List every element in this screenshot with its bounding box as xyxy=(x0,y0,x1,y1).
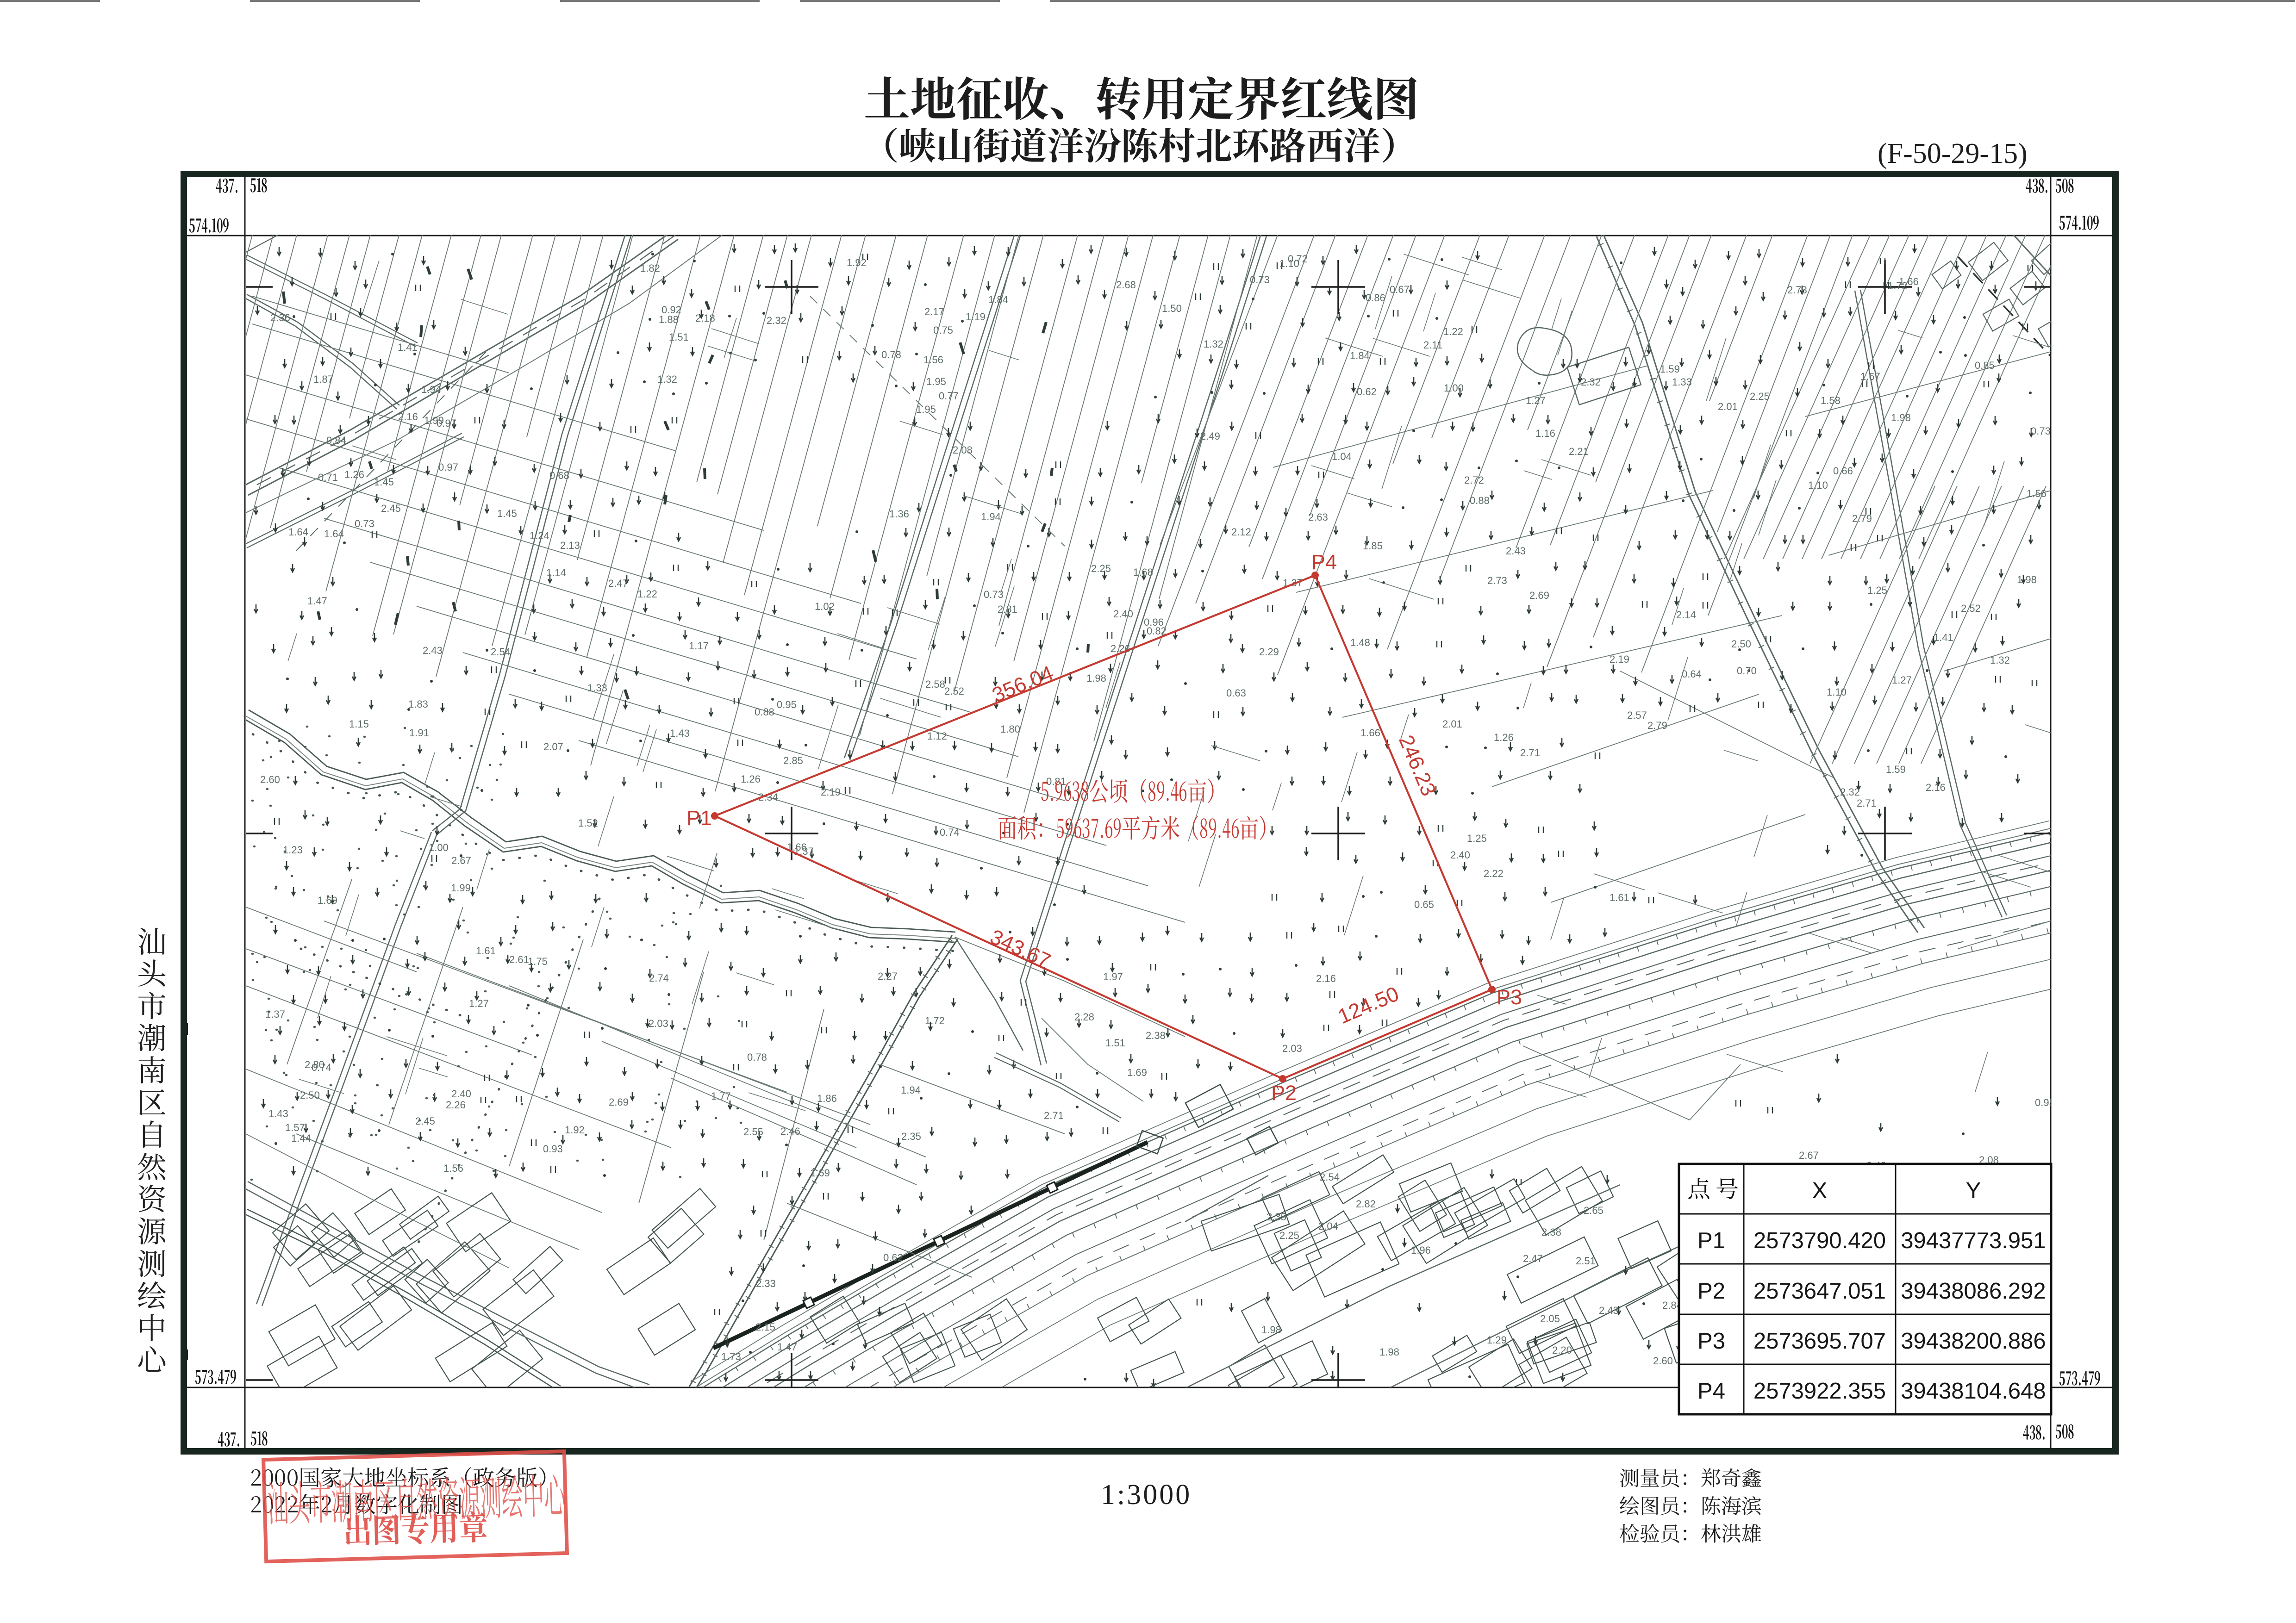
svg-text:2.16: 2.16 xyxy=(1316,973,1336,984)
svg-text:1.19: 1.19 xyxy=(966,311,986,323)
svg-text:39438086.292: 39438086.292 xyxy=(1901,1279,2046,1304)
svg-text:1.26: 1.26 xyxy=(344,469,364,480)
svg-text:2.05: 2.05 xyxy=(1540,1313,1560,1325)
svg-text:2.58: 2.58 xyxy=(925,678,945,690)
svg-text:1.47: 1.47 xyxy=(307,595,327,607)
svg-text:1.83: 1.83 xyxy=(408,698,428,710)
svg-text:2.71: 2.71 xyxy=(1520,747,1540,759)
svg-text:2.36: 2.36 xyxy=(270,312,290,323)
svg-text:1.64: 1.64 xyxy=(324,528,344,540)
svg-text:(F-50-29-15): (F-50-29-15) xyxy=(1878,138,2028,169)
svg-text:1.92: 1.92 xyxy=(847,257,867,268)
svg-text:2.45: 2.45 xyxy=(415,1115,435,1127)
svg-text:1.02: 1.02 xyxy=(815,601,835,612)
svg-text:1.36: 1.36 xyxy=(889,508,909,520)
svg-text:2.16: 2.16 xyxy=(1926,782,1946,793)
svg-text:0.77: 0.77 xyxy=(939,390,959,402)
svg-text:2.67: 2.67 xyxy=(1799,1150,1819,1161)
svg-text:2.69: 2.69 xyxy=(609,1096,629,1108)
svg-text:1.10: 1.10 xyxy=(1827,686,1847,698)
svg-text:1.57: 1.57 xyxy=(285,1122,305,1133)
svg-text:1.77: 1.77 xyxy=(711,1090,731,1102)
svg-text:0.86: 0.86 xyxy=(1366,292,1385,304)
svg-text:0.66: 0.66 xyxy=(1833,465,1853,477)
svg-text:1.00: 1.00 xyxy=(429,842,449,853)
svg-text:2.32: 2.32 xyxy=(1581,376,1601,388)
svg-text:1.69: 1.69 xyxy=(1127,1067,1147,1078)
svg-text:1.41: 1.41 xyxy=(398,342,418,353)
svg-text:1.59: 1.59 xyxy=(1886,764,1906,775)
svg-text:P1: P1 xyxy=(686,806,712,830)
svg-text:2.01: 2.01 xyxy=(1442,718,1462,730)
svg-text:1.80: 1.80 xyxy=(1000,723,1020,735)
svg-text:2.25: 2.25 xyxy=(1750,391,1770,402)
svg-text:2.35: 2.35 xyxy=(901,1131,921,1142)
svg-text:1.87: 1.87 xyxy=(313,373,333,385)
svg-text:0.97: 0.97 xyxy=(438,461,458,473)
svg-text:2.52: 2.52 xyxy=(1961,603,1981,614)
svg-text:2.43: 2.43 xyxy=(423,645,443,656)
svg-text:1.22: 1.22 xyxy=(1443,326,1463,337)
svg-text:0.85: 0.85 xyxy=(1975,360,1995,371)
svg-text:1.32: 1.32 xyxy=(1204,338,1223,350)
svg-text:2573647.051: 2573647.051 xyxy=(1753,1279,1886,1304)
svg-text:1.98: 1.98 xyxy=(1379,1346,1399,1358)
svg-text:2573922.355: 2573922.355 xyxy=(1753,1379,1886,1404)
svg-text:2.85: 2.85 xyxy=(783,755,803,766)
svg-text:0.88: 0.88 xyxy=(755,706,774,718)
svg-text:2.11: 2.11 xyxy=(1423,339,1442,351)
svg-text:2.29: 2.29 xyxy=(1259,646,1279,658)
svg-text:1.16: 1.16 xyxy=(1535,428,1555,439)
svg-text:2.55: 2.55 xyxy=(743,1126,763,1138)
svg-text:0.78: 0.78 xyxy=(747,1051,767,1063)
svg-text:2.04: 2.04 xyxy=(1318,1220,1338,1232)
svg-text:1.94: 1.94 xyxy=(901,1084,921,1096)
svg-text:2.63: 2.63 xyxy=(1308,511,1328,523)
svg-text:2.49: 2.49 xyxy=(1200,430,1220,442)
svg-text:1.94: 1.94 xyxy=(981,511,1001,522)
svg-text:2573695.707: 2573695.707 xyxy=(1753,1329,1886,1354)
svg-text:1.92: 1.92 xyxy=(565,1124,585,1136)
svg-text:1.27: 1.27 xyxy=(1892,674,1912,686)
svg-text:1.72: 1.72 xyxy=(925,1015,945,1026)
svg-text:2.15: 2.15 xyxy=(755,1321,775,1333)
svg-text:1.25: 1.25 xyxy=(1867,585,1887,596)
svg-text:2.19: 2.19 xyxy=(821,786,841,798)
svg-text:2.26: 2.26 xyxy=(446,1099,466,1111)
svg-text:2.16: 2.16 xyxy=(398,411,418,423)
svg-text:1.47: 1.47 xyxy=(777,1341,797,1353)
svg-text:1.86: 1.86 xyxy=(817,1093,837,1104)
svg-text:0.93: 0.93 xyxy=(543,1143,563,1155)
svg-text:1.98: 1.98 xyxy=(1086,672,1106,684)
svg-text:2.38: 2.38 xyxy=(1541,1226,1561,1238)
svg-text:0.78: 0.78 xyxy=(881,349,901,361)
svg-text:2.03: 2.03 xyxy=(1282,1043,1302,1054)
svg-text:2.71: 2.71 xyxy=(1857,797,1877,809)
svg-text:1.41: 1.41 xyxy=(1934,632,1953,643)
svg-text:2.19: 2.19 xyxy=(1610,653,1629,665)
svg-text:P2: P2 xyxy=(1697,1279,1725,1304)
svg-text:2.25: 2.25 xyxy=(1279,1230,1299,1241)
svg-text:2.61: 2.61 xyxy=(509,954,529,965)
svg-text:1.73: 1.73 xyxy=(721,1351,741,1362)
svg-text:2.51: 2.51 xyxy=(1576,1255,1596,1267)
svg-text:2.73: 2.73 xyxy=(1487,575,1507,586)
svg-text:1.23: 1.23 xyxy=(283,844,303,856)
svg-text:2.07: 2.07 xyxy=(543,741,563,752)
svg-text:X: X xyxy=(1812,1178,1828,1203)
svg-text:1.72: 1.72 xyxy=(1888,280,1908,292)
svg-text:39438104.648: 39438104.648 xyxy=(1901,1379,2046,1404)
svg-text:1.26: 1.26 xyxy=(741,773,761,785)
svg-text:1.58: 1.58 xyxy=(1821,395,1841,406)
svg-text:P4: P4 xyxy=(1697,1379,1725,1404)
svg-text:1.27: 1.27 xyxy=(469,998,489,1009)
svg-text:1.67: 1.67 xyxy=(1860,371,1880,382)
svg-text:2.79: 2.79 xyxy=(1647,720,1667,731)
svg-text:1.26: 1.26 xyxy=(1494,732,1514,743)
svg-text:P1: P1 xyxy=(1697,1228,1725,1253)
svg-text:1.64: 1.64 xyxy=(288,526,308,538)
svg-text:1.37: 1.37 xyxy=(265,1008,285,1020)
svg-text:2.14: 2.14 xyxy=(1676,609,1696,621)
svg-text:1:3000: 1:3000 xyxy=(1101,1479,1192,1511)
svg-text:2573790.420: 2573790.420 xyxy=(1753,1228,1886,1253)
svg-text:0.74: 0.74 xyxy=(312,1062,331,1073)
svg-text:1.97: 1.97 xyxy=(1103,971,1123,983)
svg-text:1.48: 1.48 xyxy=(1350,637,1370,648)
svg-text:2.25: 2.25 xyxy=(1091,563,1111,574)
svg-text:0.63: 0.63 xyxy=(1226,687,1246,699)
svg-text:39437773.951: 39437773.951 xyxy=(1901,1228,2046,1253)
svg-text:P4: P4 xyxy=(1311,550,1337,574)
svg-text:1.94: 1.94 xyxy=(421,384,441,395)
svg-text:2.40: 2.40 xyxy=(1113,608,1133,620)
svg-text:2.40: 2.40 xyxy=(1450,849,1470,861)
svg-text:2.69: 2.69 xyxy=(1529,590,1549,601)
svg-text:2.50: 2.50 xyxy=(1731,638,1751,650)
svg-text:1.56: 1.56 xyxy=(443,1163,463,1174)
svg-text:2.43: 2.43 xyxy=(1506,545,1526,557)
svg-text:0.96: 0.96 xyxy=(1144,616,1164,628)
svg-text:1.95: 1.95 xyxy=(916,404,936,415)
svg-text:2.54: 2.54 xyxy=(1320,1171,1340,1183)
svg-text:2.71: 2.71 xyxy=(1044,1110,1064,1121)
svg-text:2.82: 2.82 xyxy=(1356,1198,1376,1210)
svg-text:1.14: 1.14 xyxy=(546,567,566,578)
svg-text:1.04: 1.04 xyxy=(1332,451,1352,462)
svg-text:39438200.886: 39438200.886 xyxy=(1901,1329,2046,1354)
svg-text:1.45: 1.45 xyxy=(497,508,517,519)
svg-text:2.73: 2.73 xyxy=(1787,284,1807,296)
svg-text:1.27: 1.27 xyxy=(1526,395,1546,406)
svg-text:2.57: 2.57 xyxy=(1627,709,1647,721)
svg-text:1.25: 1.25 xyxy=(1467,833,1487,844)
svg-text:1.56: 1.56 xyxy=(2027,488,2046,499)
svg-text:2.60: 2.60 xyxy=(260,774,280,785)
svg-text:2.54: 2.54 xyxy=(491,646,511,658)
svg-text:2.20: 2.20 xyxy=(1552,1344,1572,1356)
svg-text:P2: P2 xyxy=(1271,1081,1297,1105)
svg-text:2.08: 2.08 xyxy=(953,444,973,456)
svg-text:2.03: 2.03 xyxy=(649,1018,668,1029)
svg-text:2.22: 2.22 xyxy=(1484,868,1504,879)
svg-text:2.45: 2.45 xyxy=(381,503,401,514)
svg-text:2.21: 2.21 xyxy=(1569,446,1589,457)
svg-text:2.32: 2.32 xyxy=(1840,786,1860,798)
svg-text:0.67: 0.67 xyxy=(1390,284,1410,295)
svg-text:2.74: 2.74 xyxy=(649,972,669,984)
svg-text:0.73: 0.73 xyxy=(355,518,374,529)
svg-text:1.99: 1.99 xyxy=(451,882,471,894)
svg-text:1.45: 1.45 xyxy=(374,476,394,488)
svg-text:1.98: 1.98 xyxy=(2017,574,2037,585)
svg-text:1.85: 1.85 xyxy=(1363,540,1383,552)
svg-text:1.88: 1.88 xyxy=(659,314,679,325)
svg-text:2.32: 2.32 xyxy=(767,315,786,326)
svg-text:2.18: 2.18 xyxy=(695,312,715,324)
svg-text:2.46: 2.46 xyxy=(780,1126,800,1137)
svg-text:Y: Y xyxy=(1966,1178,1981,1203)
svg-text:1.22: 1.22 xyxy=(637,588,657,600)
svg-text:2.81: 2.81 xyxy=(998,603,1017,615)
svg-text:1.98: 1.98 xyxy=(1891,412,1911,423)
svg-text:1.61: 1.61 xyxy=(476,945,496,957)
svg-text:1.61: 1.61 xyxy=(1610,892,1629,903)
svg-text:0.68: 0.68 xyxy=(549,470,569,481)
svg-text:1.84: 1.84 xyxy=(988,294,1008,305)
svg-text:1.00: 1.00 xyxy=(1444,382,1464,394)
svg-text:1.96: 1.96 xyxy=(1411,1244,1431,1256)
svg-text:1.98: 1.98 xyxy=(1261,1324,1281,1336)
svg-text:2.33: 2.33 xyxy=(756,1278,776,1289)
svg-text:2.13: 2.13 xyxy=(560,540,580,551)
svg-text:1.51: 1.51 xyxy=(669,331,689,343)
svg-text:2.43: 2.43 xyxy=(1599,1305,1619,1316)
svg-text:0.65: 0.65 xyxy=(1414,899,1434,910)
svg-text:2.72: 2.72 xyxy=(1464,474,1484,486)
svg-text:0.73: 0.73 xyxy=(1250,274,1270,286)
svg-text:0.72: 0.72 xyxy=(1288,253,1308,265)
svg-text:2.79: 2.79 xyxy=(1852,513,1872,524)
svg-text:2.47: 2.47 xyxy=(608,578,628,589)
svg-text:1.32: 1.32 xyxy=(1990,654,2010,666)
svg-text:0.64: 0.64 xyxy=(1682,668,1702,680)
svg-text:1.51: 1.51 xyxy=(1105,1037,1125,1049)
svg-text:2.17: 2.17 xyxy=(924,306,944,317)
svg-text:1.50: 1.50 xyxy=(1162,303,1182,314)
svg-text:1.15: 1.15 xyxy=(349,718,369,730)
svg-text:1.12: 1.12 xyxy=(927,730,947,742)
svg-text:1.66: 1.66 xyxy=(1360,727,1380,739)
svg-text:1.82: 1.82 xyxy=(640,262,660,274)
svg-text:0.71: 0.71 xyxy=(318,472,338,483)
svg-text:0.70: 0.70 xyxy=(1737,665,1757,677)
svg-text:1.59: 1.59 xyxy=(1660,363,1680,375)
svg-text:0.73: 0.73 xyxy=(984,589,1004,600)
svg-text:1.33: 1.33 xyxy=(1672,376,1692,388)
svg-text:1.91: 1.91 xyxy=(409,727,429,739)
svg-text:1.52: 1.52 xyxy=(578,817,598,829)
svg-text:2.68: 2.68 xyxy=(1116,279,1136,291)
svg-text:0.75: 0.75 xyxy=(933,324,953,336)
svg-text:0.74: 0.74 xyxy=(940,827,960,838)
svg-text:0.62: 0.62 xyxy=(1357,386,1377,398)
svg-text:1.43: 1.43 xyxy=(670,728,690,739)
svg-text:1.56: 1.56 xyxy=(923,354,943,366)
svg-text:0.73: 0.73 xyxy=(2031,425,2051,437)
svg-text:2.35: 2.35 xyxy=(1267,1211,1286,1223)
svg-text:1.99: 1.99 xyxy=(424,415,444,426)
svg-text:1.44: 1.44 xyxy=(291,1132,311,1144)
svg-text:0.62: 0.62 xyxy=(883,1252,903,1263)
svg-text:2.52: 2.52 xyxy=(944,685,964,697)
svg-text:1.69: 1.69 xyxy=(810,1167,830,1179)
svg-text:1.24: 1.24 xyxy=(530,530,549,541)
svg-text:2.47: 2.47 xyxy=(1523,1253,1543,1264)
svg-text:1.68: 1.68 xyxy=(1133,566,1153,578)
svg-text:1.95: 1.95 xyxy=(926,376,946,387)
svg-text:P3: P3 xyxy=(1697,1329,1725,1354)
svg-text:2.50: 2.50 xyxy=(300,1089,320,1101)
svg-text:2.12: 2.12 xyxy=(1231,526,1251,538)
svg-text:2.27: 2.27 xyxy=(878,970,898,982)
svg-text:2.01: 2.01 xyxy=(1718,401,1738,412)
svg-text:1.32: 1.32 xyxy=(657,373,677,385)
svg-text:2.67: 2.67 xyxy=(451,855,471,866)
svg-text:0.88: 0.88 xyxy=(1470,495,1490,506)
svg-text:P3: P3 xyxy=(1497,985,1522,1009)
svg-text:1.17: 1.17 xyxy=(689,640,709,652)
svg-text:1.75: 1.75 xyxy=(528,956,548,967)
svg-text:1.43: 1.43 xyxy=(268,1108,288,1119)
svg-text:1.10: 1.10 xyxy=(1808,479,1828,491)
svg-text:2.65: 2.65 xyxy=(1584,1205,1603,1216)
svg-text:2.38: 2.38 xyxy=(1146,1030,1166,1041)
svg-text:2.40: 2.40 xyxy=(451,1088,471,1100)
svg-text:1.29: 1.29 xyxy=(1487,1334,1507,1346)
svg-text:0.84: 0.84 xyxy=(326,435,346,446)
svg-text:2.60: 2.60 xyxy=(1653,1355,1673,1367)
svg-text:0.95: 0.95 xyxy=(777,699,797,710)
svg-text:2.28: 2.28 xyxy=(1074,1011,1094,1023)
